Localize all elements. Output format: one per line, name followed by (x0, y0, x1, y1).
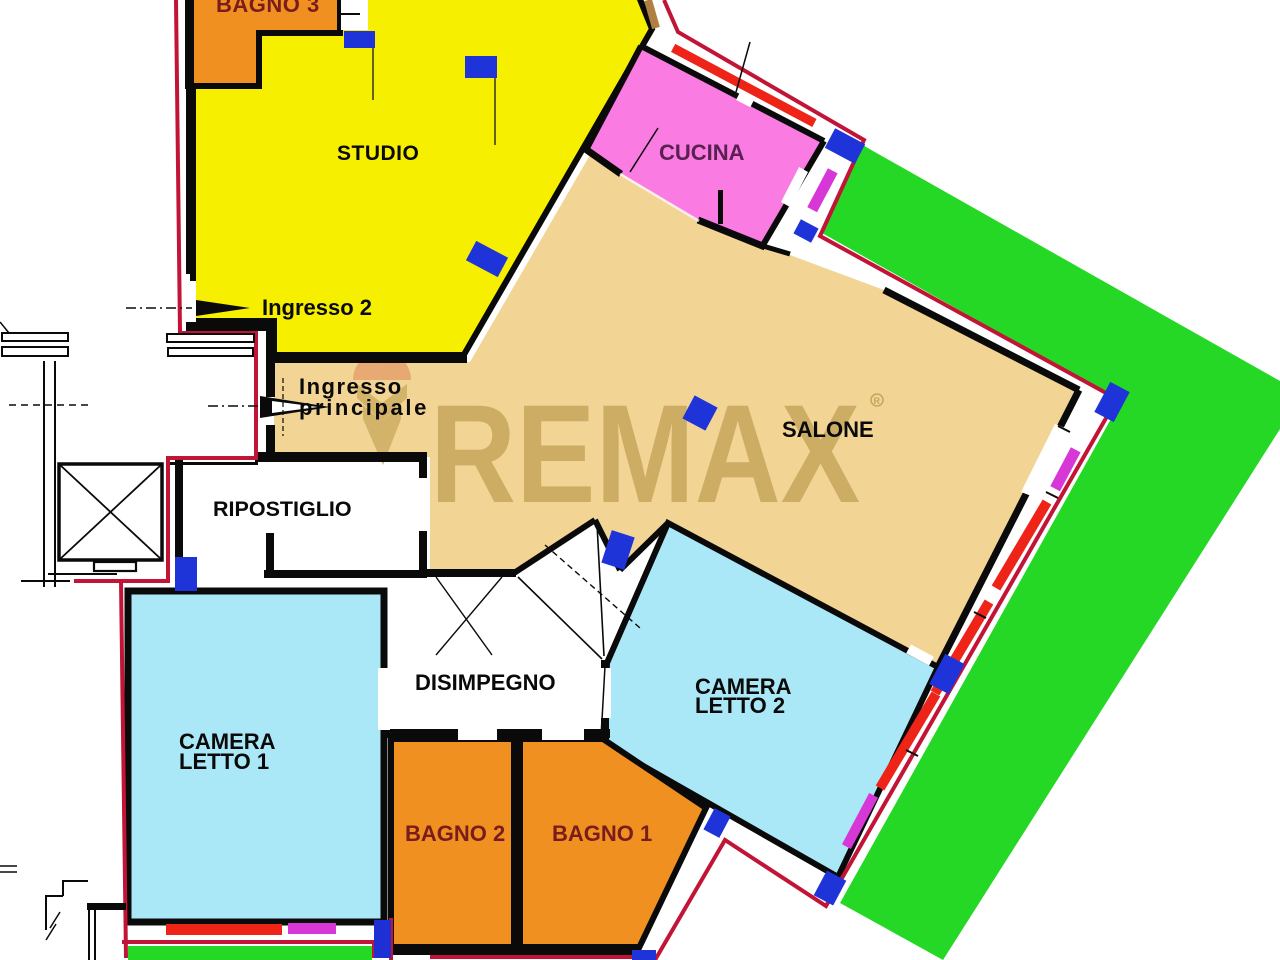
svg-text:LETTO 2: LETTO 2 (695, 693, 785, 718)
svg-text:CUCINA: CUCINA (659, 140, 745, 165)
svg-text:RIPOSTIGLIO: RIPOSTIGLIO (213, 497, 352, 521)
svg-text:REMAX: REMAX (430, 375, 860, 532)
svg-text:principale: principale (299, 395, 429, 420)
svg-text:R: R (874, 396, 881, 406)
svg-text:STUDIO: STUDIO (337, 142, 419, 165)
svg-text:SALONE: SALONE (782, 417, 874, 442)
svg-text:LETTO 1: LETTO 1 (179, 749, 269, 774)
svg-text:DISIMPEGNO: DISIMPEGNO (415, 670, 556, 695)
svg-text:Ingresso 2: Ingresso 2 (262, 295, 372, 320)
svg-text:BAGNO 3: BAGNO 3 (216, 0, 320, 17)
svg-text:BAGNO 1: BAGNO 1 (552, 821, 652, 846)
svg-text:BAGNO 2: BAGNO 2 (405, 821, 505, 846)
